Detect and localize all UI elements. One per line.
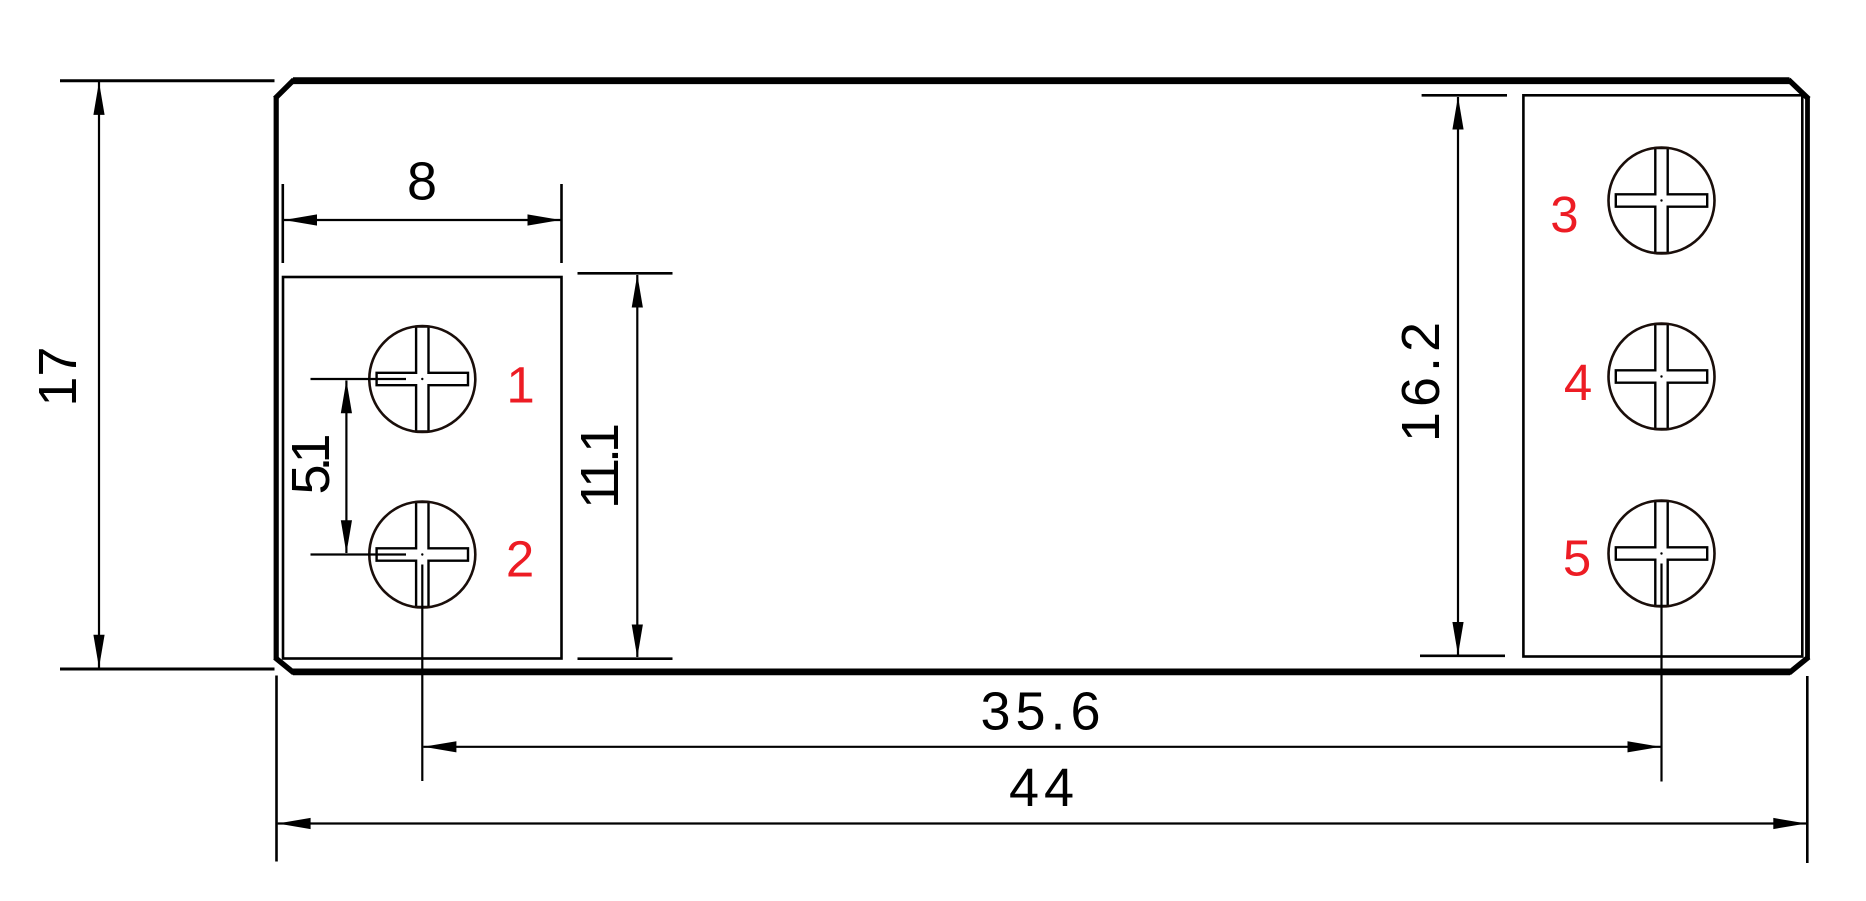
svg-text:5: 5: [1563, 530, 1591, 587]
svg-text:11.1: 11.1: [570, 425, 630, 509]
svg-text:3: 3: [1550, 186, 1578, 243]
svg-text:35.6: 35.6: [980, 682, 1105, 742]
svg-text:1: 1: [506, 357, 534, 414]
svg-text:2: 2: [506, 531, 534, 588]
svg-text:5.1: 5.1: [281, 436, 341, 495]
svg-text:8: 8: [407, 152, 437, 212]
svg-text:16.2: 16.2: [1391, 317, 1451, 442]
svg-text:4: 4: [1564, 354, 1592, 411]
svg-text:17: 17: [28, 347, 88, 407]
svg-text:44: 44: [1009, 758, 1079, 818]
